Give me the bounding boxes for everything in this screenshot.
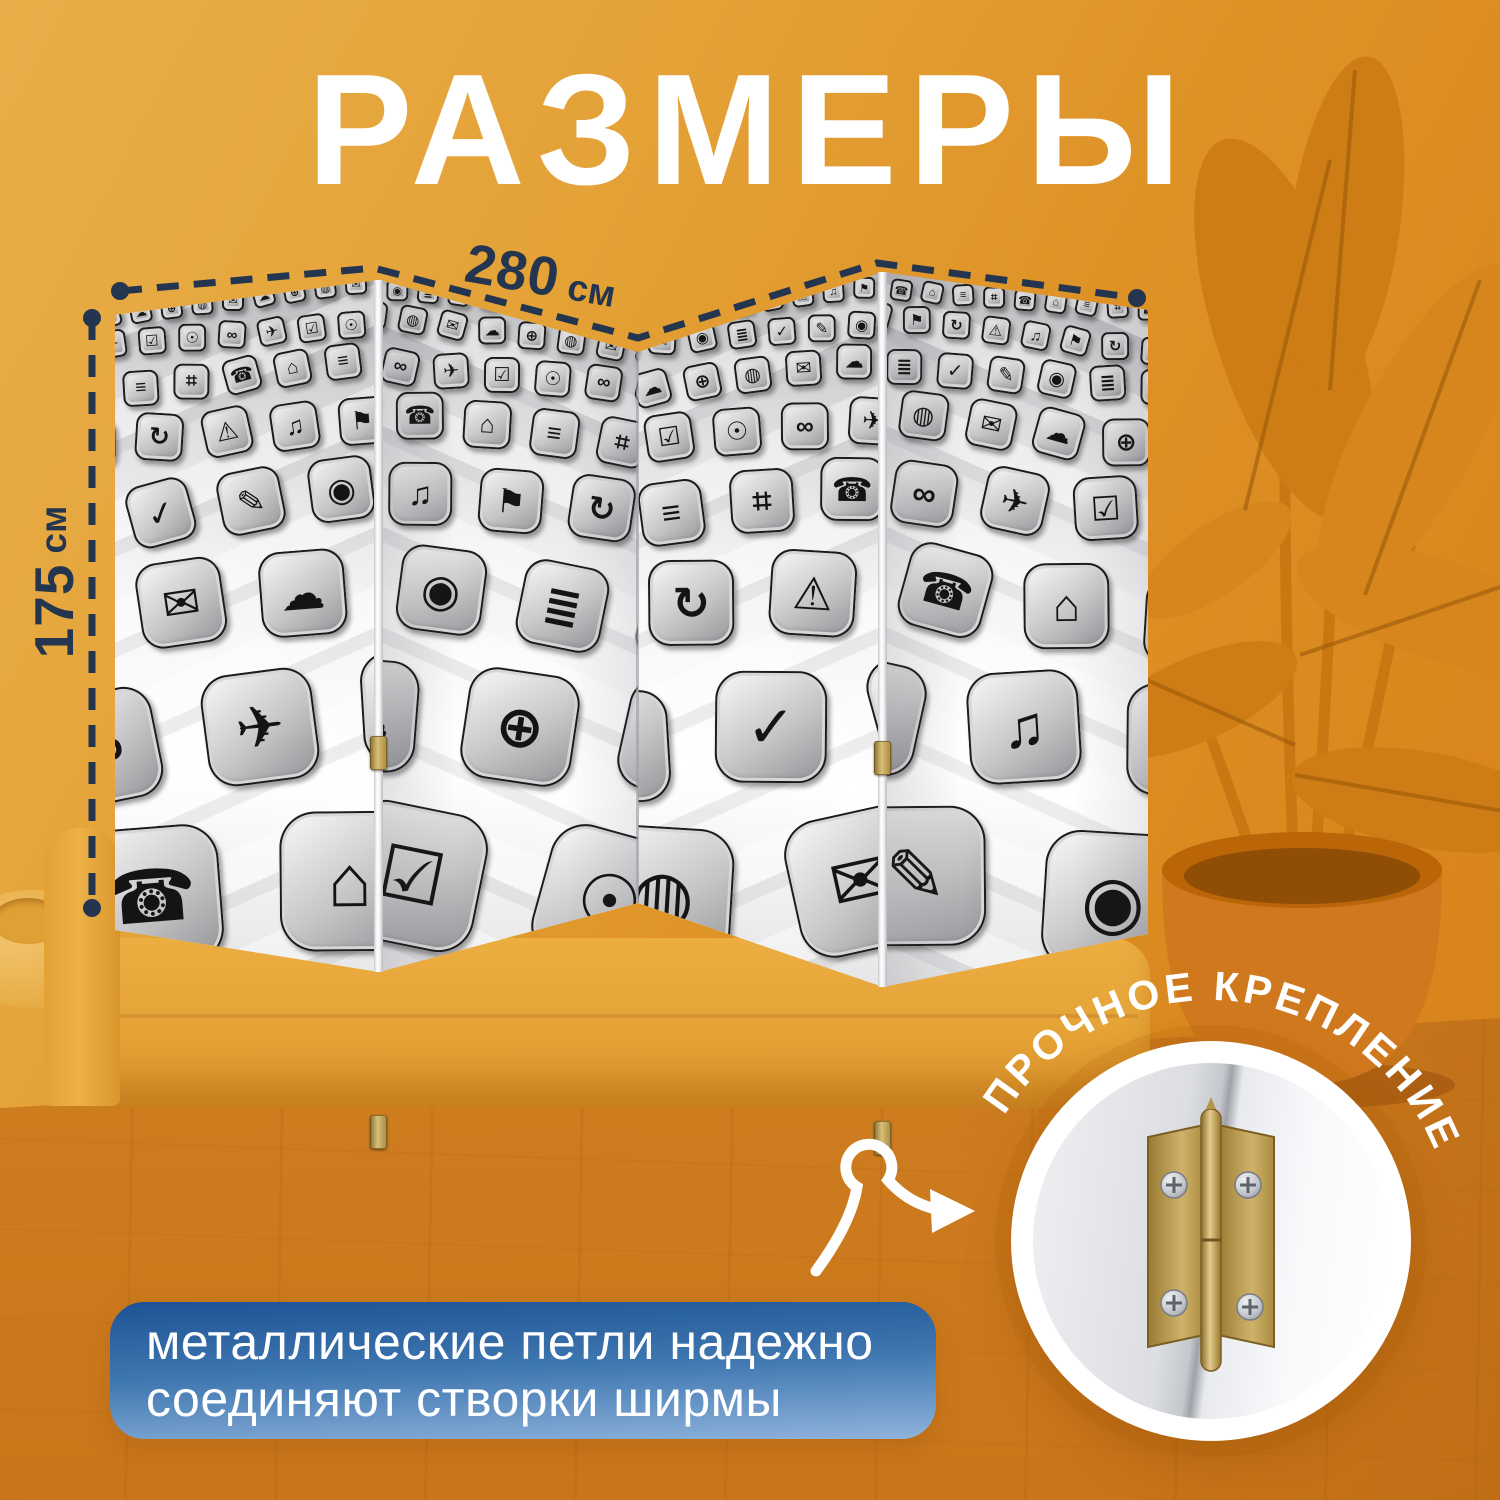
pattern-icon-tile: ✉	[344, 272, 367, 295]
pattern-icon-tile: ↻	[759, 287, 785, 313]
pattern-icon-tile: ⌗	[593, 414, 638, 471]
pattern-icon-tile: ⊕	[681, 360, 723, 402]
screen-panel-4: ☎⌂≡⌗☎⌂≡⌗☎♫⚑↻⚠♫⚑↻⚠◉≣✓✎◉≣✓⊕◍✉☁⊕◍☉∞✈☑☉⌗☎⌂≡⚠…	[883, 263, 1148, 987]
pattern-icon-tile: ≣	[416, 281, 440, 305]
pattern-icon-tile: ⊕	[281, 279, 307, 305]
pattern-icon-tile: ◍	[396, 303, 429, 336]
pattern-icon-tile: ⚑	[853, 277, 875, 299]
pattern-icon-tile: ⚑	[902, 306, 930, 334]
pattern-icon-tile: ↻	[1101, 332, 1129, 360]
pattern-icon-tile: ◉	[631, 297, 638, 323]
pattern-icon-tile: ☎	[115, 822, 227, 973]
pattern-icon-tile: ✓	[936, 352, 975, 391]
icon-tile-row: ≣✓✎◉≣	[120, 453, 379, 550]
pattern-icon-tile: ✈	[255, 315, 288, 348]
fold-hinge	[370, 736, 387, 770]
height-dimension-label: 175см	[22, 472, 86, 692]
pattern-icon-tile: ☎	[889, 278, 914, 303]
pattern-icon-tile: ✎	[808, 314, 836, 342]
icon-tile-row: ⌗☎⌂≡	[883, 537, 1148, 659]
fold-frame-right	[878, 272, 887, 987]
pattern-icon-tile: ≡	[323, 341, 363, 381]
icon-tile-row: ⚑↻⚠♫	[638, 545, 883, 651]
pattern-icon-tile: ☑	[642, 410, 697, 465]
icon-tile-row: ✎◉≣✓	[379, 538, 638, 659]
product-infographic: ✉☁⊕◍✉☁⊕◍✉✈☑☉∞✈☑☉∞⌂≡⌗☎⌂≡⌗⚑↻⚠♫⚑↻≣✓✎◉≣◍✉☁⊕∞…	[0, 0, 1500, 1500]
icon-tile-row: ☎⌂	[117, 809, 379, 969]
pattern-icon-tile: ∞	[115, 682, 168, 814]
icon-tile-row: ♫⚑↻⚠♫⚑↻⚠	[883, 302, 1148, 364]
pattern-icon-tile: ◉	[1035, 358, 1078, 401]
pattern-icon-tile: ≣	[511, 555, 612, 656]
screen-panel-3: ↻⚠♫⚑↻⚠♫⚑↻✓✎◉≣✓✎◉≣✉☁⊕◍✉☁⊕✈☑☉∞✈☑⌂≡⌗☎⌂⚑↻⚠♫≣…	[638, 263, 883, 987]
pattern-icon-tile: ✈	[432, 352, 470, 390]
pattern-icon-tile: ≣	[886, 349, 922, 385]
pattern-icon-tile: ↻	[648, 559, 735, 646]
height-unit: см	[33, 506, 75, 554]
pattern-icon-tile: ≡	[1141, 576, 1148, 667]
pattern-icon-tile: ☎	[819, 457, 883, 522]
pattern-icon-tile: ♫	[388, 462, 453, 527]
sofa-seat-seam	[60, 1014, 1138, 1018]
icon-tile-row: ✈☑☉∞✈☑	[657, 396, 883, 461]
pattern-icon-tile: ∞	[583, 363, 624, 404]
pattern-icon-tile: ✓	[1140, 369, 1148, 405]
pattern-icon-tile: ⌗	[728, 467, 796, 535]
pattern-icon-tile: ✉	[784, 349, 822, 387]
pattern-icon-tile: ☉	[533, 360, 572, 399]
pattern-icon-tile: ✓	[714, 671, 827, 784]
callout-line-2: соединяют створки ширмы	[146, 1371, 936, 1428]
brass-hinge-icon	[1106, 1085, 1316, 1385]
pattern-icon-tile: ⌗	[1106, 296, 1129, 319]
icon-tile-row: ⚠♫⚑↻⚠	[382, 459, 638, 543]
pattern-icon-tile: ≡	[1074, 292, 1100, 318]
pattern-icon-tile: ⚠	[198, 403, 255, 460]
pattern-icon-tile: ☁	[478, 316, 506, 344]
pattern-icon-tile: ◍	[313, 276, 338, 301]
icon-tile-row: ⌂≡⌗☎⌂	[638, 453, 883, 548]
pattern-icon-tile: ∞	[781, 402, 829, 450]
pattern-icon-tile: ⌂	[279, 811, 379, 952]
icon-tile-row: ☉∞✈☑☉∞✈	[379, 346, 638, 403]
center-fold-seam	[636, 352, 639, 903]
icon-tile-row: ☁⊕◍	[398, 662, 638, 792]
pattern-icon-tile: ☎	[892, 537, 998, 643]
fold-hinge	[874, 1121, 891, 1155]
icon-tile-row: ☉∞✈☑☉	[883, 459, 1148, 544]
icon-tile-row: ≣✓✎	[652, 657, 883, 797]
pattern-icon-tile: ⚠	[1139, 336, 1148, 366]
pattern-icon-tile: ✉	[594, 330, 627, 363]
pattern-icon-tile: ⊕	[1101, 418, 1148, 466]
pattern-icon-tile: ⚑	[336, 395, 379, 447]
pattern-icon-tile: ◉	[393, 542, 489, 638]
pattern-icon-tile: ☎	[395, 391, 443, 439]
pattern-icon-tile: ◍	[638, 823, 736, 971]
pattern-icon-tile: ✉	[962, 396, 1019, 453]
pattern-icon-tile: ⌂	[271, 347, 313, 389]
pattern-icon-tile: ✉	[777, 798, 883, 965]
pattern-icon-tile: ✉	[222, 289, 244, 311]
pattern-icon-tile: ☑	[1072, 474, 1140, 542]
pattern-icon-tile: ↻	[941, 310, 971, 340]
icon-tile-row: ⚑↻⚠♫⚑↻	[140, 396, 379, 462]
pattern-icon-tile: ⚠	[790, 284, 815, 309]
pattern-icon-tile: ✉	[435, 308, 469, 342]
pattern-icon-tile: ♫	[965, 668, 1084, 787]
pattern-icon-tile: ☉	[523, 816, 638, 987]
pattern-icon-tile: ☎	[220, 353, 264, 397]
pattern-icon-tile: ✈	[977, 463, 1053, 539]
pattern-icon-tile: ✓	[767, 316, 797, 346]
pattern-icon-tile: ✎	[213, 463, 288, 538]
pattern-icon-tile: ⌂	[461, 399, 512, 450]
icon-tile-row: ☎⌂≡⌗☎⌂≡⌗☎	[902, 279, 1148, 320]
icon-tile-row: ⌗☎⌂≡⌗☎	[401, 390, 638, 468]
pattern-icon-tile: ☁	[638, 366, 674, 410]
callout-line-1: металлические петли надежно	[146, 1314, 936, 1371]
icon-tile-row: ◉≣✓✎◉≣✓	[883, 346, 1148, 404]
pattern-icon-tile: ☑	[484, 357, 520, 393]
pattern-icon-tile: ☎	[1138, 299, 1148, 321]
pattern-icon-tile: ∞	[379, 346, 422, 389]
hinge-photo	[1033, 1063, 1389, 1419]
pattern-icon-tile: ☁	[1029, 404, 1088, 463]
pattern-icon-tile: ⌂	[1023, 563, 1110, 650]
folding-screen: ✉☁⊕◍✉☁⊕◍✉✈☑☉∞✈☑☉∞⌂≡⌗☎⌂≡⌗⚑↻⚠♫⚑↻≣✓✎◉≣◍✉☁⊕∞…	[115, 263, 1148, 987]
icon-tile-row: ☑☉	[379, 803, 638, 975]
icon-tile-row: ✎◉	[883, 802, 1148, 976]
pattern-icon-tile: ♫	[1019, 319, 1052, 352]
pattern-icon-tile: ⌗	[983, 286, 1005, 308]
panel-icon-pattern: ◉≣✓✎◉≣✓✎◉⊕◍✉☁⊕◍✉☁☉∞✈☑☉∞✈⌗☎⌂≡⌗☎⚠♫⚑↻⚠✎◉≣✓☁…	[379, 263, 638, 987]
pattern-icon-tile: ⚑	[727, 291, 754, 318]
pattern-icon-tile: ◉	[386, 279, 408, 301]
pattern-icon-tile: ☉	[336, 310, 366, 340]
pattern-icon-tile: ⚠	[767, 548, 858, 639]
sofa-armrest	[44, 828, 120, 1106]
pattern-icon-tile: ⚠	[980, 315, 1011, 346]
fold-hinge	[874, 741, 891, 775]
pattern-icon-tile: ◉	[305, 453, 377, 525]
height-value: 175	[22, 564, 86, 659]
pattern-icon-tile: ↻	[133, 412, 184, 463]
pattern-icon-tile: ⚠	[668, 300, 691, 323]
pattern-icon-tile: ⚑	[1126, 683, 1148, 796]
pattern-icon-tile: ⌂	[1043, 290, 1068, 315]
icon-tile-row: ◍✉☁⊕	[115, 544, 379, 651]
panel-icon-pattern: ✉☁⊕◍✉☁⊕◍✉✈☑☉∞✈☑☉∞⌂≡⌗☎⌂≡⌗⚑↻⚠♫⚑↻≣✓✎◉≣◍✉☁⊕∞…	[115, 263, 379, 987]
panel-icon-pattern: ☎⌂≡⌗☎⌂≡⌗☎♫⚑↻⚠♫⚑↻⚠◉≣✓✎◉≣✓⊕◍✉☁⊕◍☉∞✈☑☉⌗☎⌂≡⚠…	[883, 263, 1148, 987]
pattern-icon-tile: ∞	[888, 457, 961, 530]
pattern-icon-tile: ≡	[952, 283, 975, 306]
pattern-icon-tile: ◉	[1039, 828, 1148, 976]
pattern-icon-tile: ∞	[217, 320, 247, 350]
pattern-icon-tile: ≡	[527, 407, 581, 461]
hinge-photo-badge	[1011, 1041, 1411, 1441]
pattern-icon-tile: ☑	[137, 326, 167, 356]
pattern-icon-tile: ☑	[295, 312, 327, 344]
pattern-icon-tile: ☁	[250, 282, 277, 309]
pattern-icon-tile: ≡	[122, 369, 160, 407]
pattern-icon-tile: ✎	[883, 805, 986, 946]
pattern-icon-tile: ☁	[835, 344, 871, 380]
screen-panel-2: ◉≣✓✎◉≣✓✎◉⊕◍✉☁⊕◍✉☁☉∞✈☑☉∞✈⌗☎⌂≡⌗☎⚠♫⚑↻⚠✎◉≣✓☁…	[379, 263, 638, 987]
panel-icon-pattern: ↻⚠♫⚑↻⚠♫⚑↻✓✎◉≣✓✎◉≣✉☁⊕◍✉☁⊕✈☑☉∞✈☑⌂≡⌗☎⌂⚑↻⚠♫≣…	[638, 263, 883, 987]
pattern-icon-tile: ♫	[267, 399, 322, 454]
pattern-icon-tile: ↻	[565, 472, 638, 545]
pattern-icon-tile: ≣	[638, 688, 672, 807]
width-unit: см	[564, 266, 618, 315]
pattern-icon-tile: ⌂	[919, 280, 945, 306]
pattern-icon-tile: ◍	[612, 673, 638, 807]
pattern-icon-tile: ☎	[1013, 288, 1037, 312]
pattern-icon-tile: ◍	[191, 292, 214, 315]
pattern-icon-tile: ☁	[128, 299, 154, 325]
pattern-icon-tile: ☉	[711, 406, 763, 458]
icon-tile-row: ⚠♫⚑	[896, 661, 1148, 792]
pattern-icon-tile: ✈	[197, 664, 323, 790]
pattern-icon-tile: ♫	[699, 297, 721, 319]
pattern-icon-tile: ◍	[896, 389, 950, 443]
icon-tile-row: ∞✈☑	[135, 656, 379, 798]
pattern-icon-tile: ☉	[178, 324, 206, 352]
pattern-icon-tile: ⚑	[1058, 324, 1092, 358]
hinge-callout-box: металлические петли надежно соединяют ст…	[110, 1302, 936, 1439]
pattern-icon-tile: ☑	[379, 793, 494, 958]
pattern-icon-tile: ⌗	[173, 364, 209, 400]
fold-frame-left	[374, 280, 383, 972]
pattern-icon-tile: ↻	[638, 304, 661, 329]
pattern-icon-tile: ◍	[555, 325, 586, 356]
pattern-icon-tile: ✓	[121, 473, 200, 552]
fold-hinge	[370, 1115, 387, 1149]
screen-panel-1: ✉☁⊕◍✉☁⊕◍✉✈☑☉∞✈☑☉∞⌂≡⌗☎⌂≡⌗⚑↻⚠♫⚑↻≣✓✎◉≣◍✉☁⊕∞…	[115, 263, 379, 987]
pattern-icon-tile: ◉	[685, 321, 718, 354]
pattern-icon-tile: ◉	[847, 310, 877, 340]
pattern-icon-tile: ✈	[115, 328, 128, 360]
pattern-icon-tile: ☁	[256, 547, 348, 639]
pattern-icon-tile: ♫	[821, 280, 844, 303]
pattern-icon-tile: ⊕	[456, 663, 583, 790]
pattern-icon-tile: ⊕	[517, 321, 547, 351]
pattern-icon-tile: ✎	[647, 326, 677, 356]
page-title: РАЗМЕРЫ	[0, 40, 1500, 221]
pattern-icon-tile: ≣	[726, 319, 758, 351]
pattern-icon-tile: ⊕	[159, 296, 184, 321]
pattern-icon-tile: ⚑	[477, 467, 546, 536]
pattern-icon-tile: ≡	[638, 477, 707, 549]
pattern-icon-tile: ✎	[986, 355, 1027, 396]
pattern-icon-tile: ✉	[132, 554, 230, 652]
icon-tile-row: ◍✉	[638, 810, 883, 969]
icon-tile-row: ⊕◍✉☁⊕◍	[899, 389, 1148, 469]
pattern-icon-tile: ✉	[115, 303, 124, 330]
pattern-icon-tile: ≣	[1089, 364, 1127, 402]
pattern-icon-tile: ◍	[732, 355, 772, 395]
